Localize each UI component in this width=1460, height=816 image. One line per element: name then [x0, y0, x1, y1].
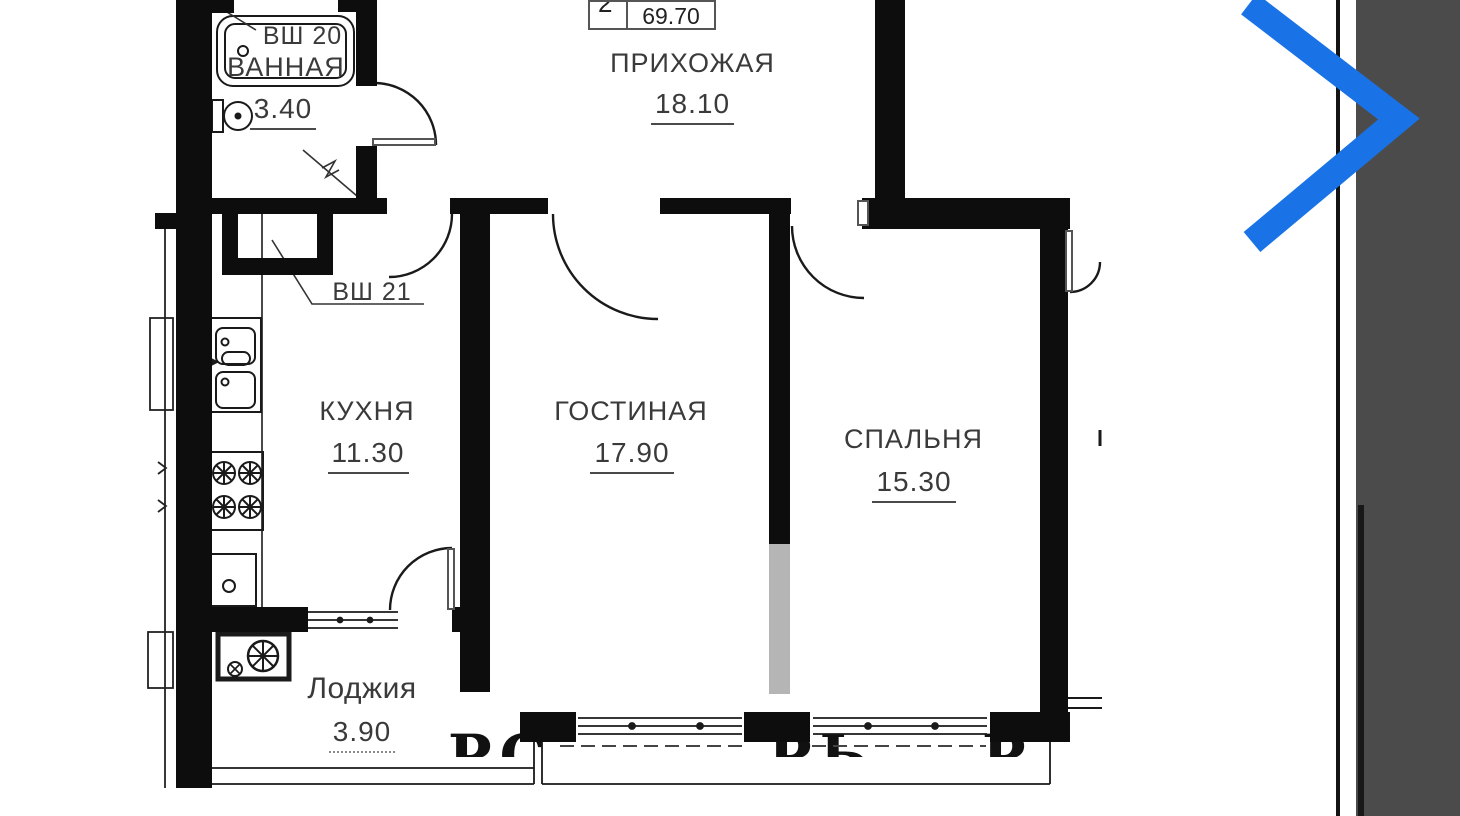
chevron-right-icon[interactable] — [1249, 4, 1399, 242]
next-arrow-button[interactable] — [0, 0, 1460, 816]
floorplan-viewer: РС РЬ Р — [0, 0, 1460, 816]
